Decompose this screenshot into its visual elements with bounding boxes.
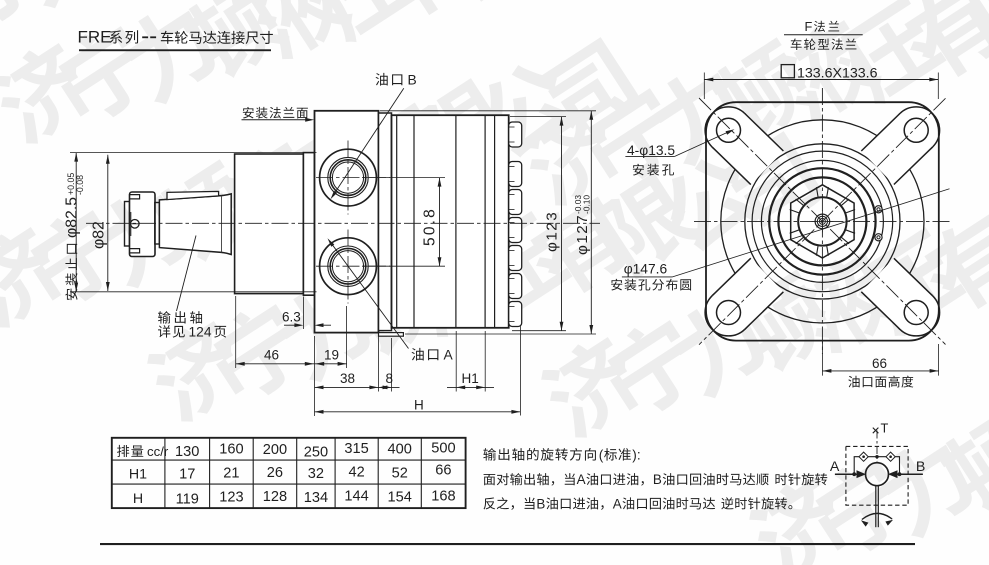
svg-text:H: H	[133, 491, 143, 507]
svg-text:φ127: φ127	[574, 214, 591, 255]
svg-text:32: 32	[308, 466, 324, 482]
svg-text:A: A	[830, 459, 840, 475]
svg-text:B: B	[916, 459, 925, 475]
svg-text:315: 315	[344, 441, 368, 457]
svg-text:154: 154	[388, 490, 412, 506]
svg-text:26: 26	[267, 465, 283, 481]
svg-text:50.8: 50.8	[422, 207, 439, 246]
svg-text:B: B	[536, 496, 545, 511]
svg-text:66: 66	[435, 463, 451, 479]
svg-text:17: 17	[179, 467, 195, 483]
svg-text:B: B	[653, 472, 662, 487]
svg-text:4-φ13.5: 4-φ13.5	[627, 143, 675, 158]
svg-text:119: 119	[176, 492, 199, 508]
svg-text:H: H	[414, 398, 424, 413]
svg-text:φ82.5: φ82.5	[64, 197, 81, 238]
svg-text:200: 200	[263, 442, 287, 458]
svg-text:6.3: 6.3	[282, 310, 301, 325]
svg-text:H1: H1	[129, 467, 147, 483]
svg-text:123: 123	[219, 490, 243, 506]
svg-text:-0.08: -0.08	[75, 175, 85, 195]
svg-text:250: 250	[304, 445, 328, 461]
svg-text:46: 46	[264, 348, 279, 363]
svg-text:F: F	[805, 19, 813, 34]
svg-text:A: A	[613, 496, 622, 511]
svg-text:FRE: FRE	[78, 28, 112, 47]
svg-text:42: 42	[348, 465, 364, 481]
svg-text:500: 500	[431, 441, 455, 457]
svg-text:400: 400	[388, 442, 412, 458]
svg-text:21: 21	[223, 466, 239, 482]
svg-text:134: 134	[304, 490, 328, 506]
svg-text:B: B	[408, 73, 417, 88]
svg-text:130: 130	[175, 444, 199, 460]
svg-text:38: 38	[340, 371, 355, 386]
svg-text:):: ):	[632, 448, 640, 463]
svg-text:128: 128	[263, 489, 287, 505]
svg-text:cc/r: cc/r	[147, 444, 169, 459]
svg-text:160: 160	[219, 442, 243, 458]
svg-text:A: A	[577, 472, 586, 487]
svg-text:H1: H1	[462, 371, 479, 386]
svg-text:T: T	[881, 421, 889, 436]
svg-text:168: 168	[431, 489, 455, 505]
svg-text:A: A	[444, 348, 454, 363]
svg-text:66: 66	[872, 356, 887, 371]
svg-text:-0.10: -0.10	[582, 195, 592, 214]
svg-text:(: (	[599, 448, 604, 463]
svg-text:52: 52	[392, 466, 408, 482]
svg-text:8: 8	[386, 371, 394, 386]
svg-text:144: 144	[344, 489, 368, 505]
svg-text:19: 19	[324, 348, 339, 363]
svg-text:124: 124	[189, 325, 212, 340]
svg-text:φ123: φ123	[544, 211, 561, 252]
svg-text:φ82: φ82	[91, 221, 108, 249]
svg-text:φ147.6: φ147.6	[624, 262, 668, 277]
